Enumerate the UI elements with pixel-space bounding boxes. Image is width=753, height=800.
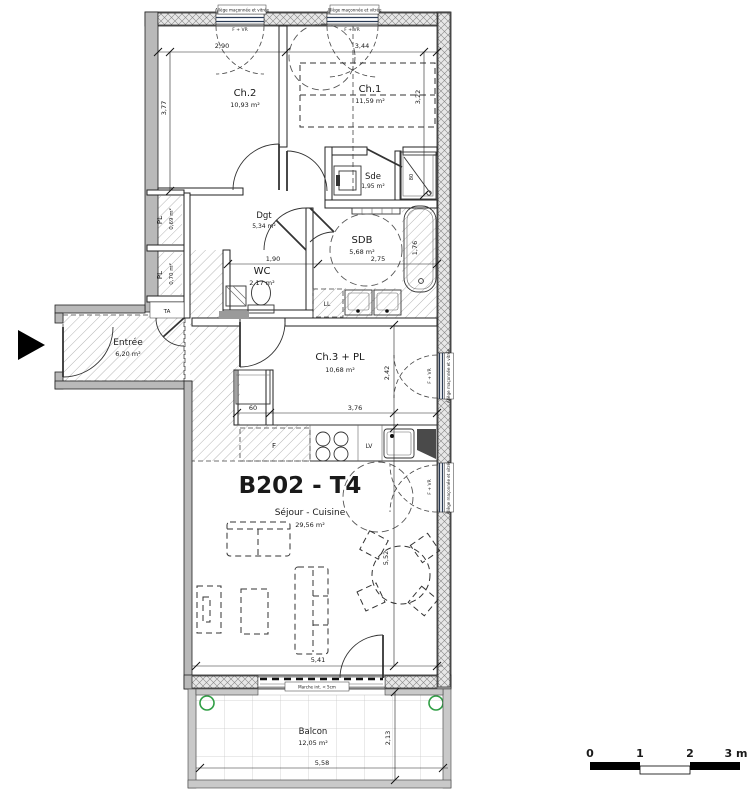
ta-label: TA [163, 309, 171, 315]
marche-label: Marche int. < 5cm [298, 685, 336, 690]
scale-tick-3: 3 m [725, 747, 748, 760]
dim-label: 60 [249, 404, 257, 412]
tv-unit [197, 586, 221, 633]
stove-icon [316, 432, 348, 461]
door-sdb [310, 208, 334, 242]
room-area-ch3: 10,68 m² [325, 366, 355, 374]
room-area-entree: 6,20 m² [115, 350, 141, 358]
scale-tick-1: 1 [636, 747, 644, 760]
room-label-sejour: Séjour - Cuisine [275, 507, 346, 518]
scale-tick-2: 2 [686, 747, 694, 760]
room-label-ch3: Ch.3 + PL [315, 352, 365, 363]
window-ch2 [216, 14, 264, 24]
room-area-wc: 2,17 m² [249, 279, 275, 287]
scale-tick-0: 0 [586, 747, 594, 760]
marche-note: Marche int. < 5cm [285, 682, 349, 691]
dim-label: 2,90 [215, 42, 229, 50]
floor-plan-drawing: Allège maçonnée et vitrée Allège maçonné… [0, 0, 753, 800]
shower-icon: 80 [400, 152, 436, 199]
room-label-pl1: PL [156, 216, 164, 224]
sink-icon [384, 429, 414, 458]
dim-label: 5,58 [315, 759, 329, 767]
allege-note-ch1: Allège maçonnée et vitrée [327, 5, 381, 14]
radiator-icon [352, 208, 400, 214]
allege-note-ch2: Allège maçonnée et vitrée [215, 5, 269, 14]
fvr-label: F + VR [232, 27, 247, 33]
coffee-table [241, 589, 268, 634]
room-label-sdb: SDB [352, 235, 373, 246]
room-area-balcon: 12,05 m² [298, 739, 328, 747]
allege-label: Allège maçonnée et vitrée [446, 349, 451, 403]
room-area-ch1: 11,59 m² [355, 97, 385, 105]
room-area-sejour: 29,56 m² [295, 521, 325, 529]
dim-label: 5,41 [311, 656, 325, 664]
exterior-walls [55, 12, 451, 788]
door-ch2 [233, 144, 279, 190]
washbasin-sde-icon [334, 166, 361, 195]
allege-note-sejour: Allège maçonnée et vitrée [445, 460, 454, 514]
room-label-ch2: Ch.2 [234, 88, 257, 99]
turning-circle-ch1 [289, 24, 355, 90]
room-label-dgt: Dgt [256, 211, 272, 221]
dim-label: 3,77 [160, 101, 168, 115]
dim-label: 2,42 [383, 366, 391, 380]
scale-bar: 0 1 2 3 m [586, 747, 747, 774]
room-area-pl1: 0,69 m² [168, 208, 175, 230]
sofa-3seat [295, 567, 328, 654]
room-area-ch2: 10,93 m² [230, 101, 260, 109]
room-label-balcon: Balcon [299, 727, 328, 737]
door-balcony [340, 635, 383, 678]
fridge-label: F [272, 442, 276, 450]
allege-label: Allège maçonnée et vitrée [446, 460, 451, 514]
dim-label: 5,52 [382, 551, 390, 565]
floor-plan-page: Allège maçonnée et vitrée Allège maçonné… [0, 0, 753, 800]
fvr-label: F + VR [427, 368, 433, 383]
plan-title: B202 - T4 [239, 473, 362, 499]
shower-width-label: 80 [409, 174, 415, 180]
closet-ch3-icon [236, 370, 270, 404]
fvr-label: F + VR [344, 27, 359, 33]
dim-label: 2,75 [371, 255, 385, 263]
dim-label: 3,22 [414, 90, 422, 104]
dim-label: 3,76 [348, 404, 362, 412]
room-label-sde: Sde [365, 172, 381, 182]
room-label-pl2: PL [156, 271, 164, 279]
door-ch1 [287, 151, 327, 191]
washing-machine-label: LL [324, 301, 331, 308]
room-label-wc: WC [254, 266, 271, 277]
door-ch3 [240, 322, 285, 367]
dishwasher-label: LV [366, 443, 374, 450]
room-area-pl2: 0,70 m² [168, 263, 175, 285]
dim-label: 1,76 [411, 241, 419, 255]
dim-label: 2,13 [384, 731, 392, 745]
room-label-entree: Entrée [113, 337, 143, 348]
dim-label: 1,90 [266, 255, 280, 263]
kitchen-cabinet-icon [417, 429, 436, 459]
room-area-sde: 1,95 m² [361, 183, 385, 190]
room-area-dgt: 5,34 m² [252, 223, 276, 230]
dim-label: 3,44 [355, 42, 369, 50]
sofa-2seat [227, 522, 290, 556]
window-ch1 [327, 14, 378, 24]
room-label-ch1: Ch.1 [359, 84, 382, 95]
floor-hatching [63, 196, 437, 461]
dining-set [357, 531, 440, 616]
balcony-floor [196, 695, 443, 780]
fvr-label: F + VR [427, 479, 433, 494]
allege-label: Allège maçonnée et vitrée [215, 8, 269, 13]
allege-label: Allège maçonnée et vitrée [327, 8, 381, 13]
allege-note-ch3: Allège maçonnée et vitrée [445, 349, 454, 403]
entrance-arrow-icon [18, 330, 45, 360]
